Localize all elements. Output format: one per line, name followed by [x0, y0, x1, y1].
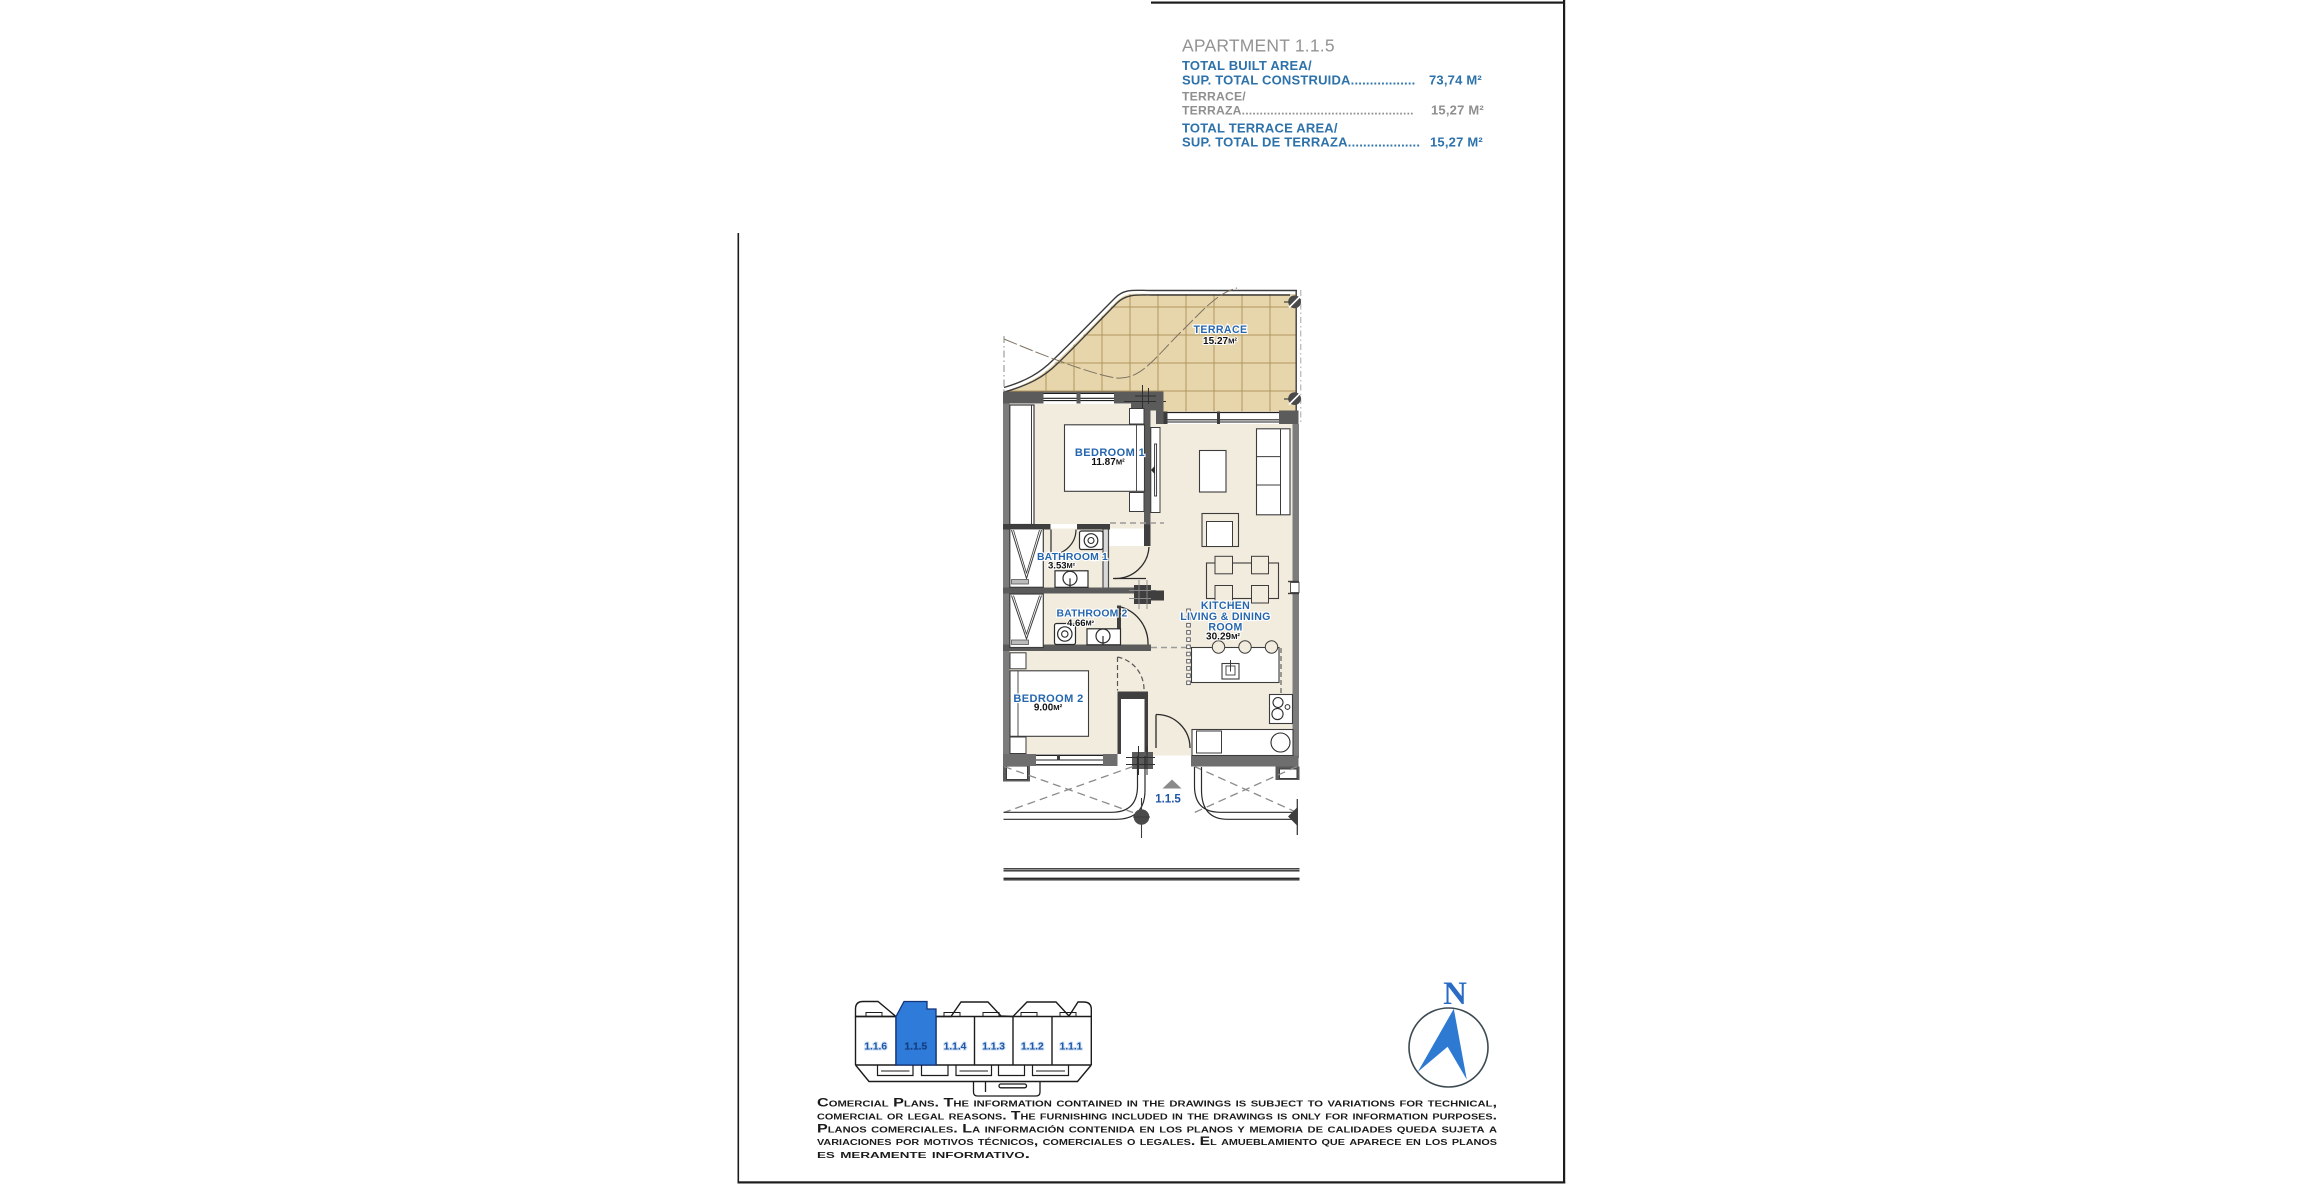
svg-text:TERRACE/: TERRACE/: [1182, 90, 1246, 104]
svg-text:1.1.5: 1.1.5: [1155, 794, 1181, 806]
svg-text:30.29M²: 30.29M²: [1206, 632, 1240, 643]
svg-text:15,27 M²: 15,27 M²: [1431, 103, 1484, 118]
svg-text:1.1.3: 1.1.3: [982, 1042, 1005, 1053]
svg-text:es meramente informativo.: es meramente informativo.: [817, 1148, 1030, 1161]
svg-text:SUP. TOTAL DE TERRAZA.........: SUP. TOTAL DE TERRAZA...................: [1182, 135, 1420, 150]
svg-text:73,74 M²: 73,74 M²: [1429, 73, 1482, 88]
svg-text:N: N: [1443, 976, 1467, 1012]
svg-text:1.1.1: 1.1.1: [1060, 1042, 1083, 1053]
svg-text:APARTMENT 1.1.5: APARTMENT 1.1.5: [1182, 36, 1335, 56]
svg-text:1.1.2: 1.1.2: [1021, 1042, 1044, 1053]
svg-text:Planos comerciales. La informa: Planos comerciales. La información conte…: [817, 1122, 1497, 1135]
svg-text:15.27M²: 15.27M²: [1203, 336, 1237, 347]
svg-text:15,27 M²: 15,27 M²: [1430, 135, 1483, 150]
svg-text:11.87M²: 11.87M²: [1091, 457, 1125, 468]
svg-text:TOTAL BUILT AREA/: TOTAL BUILT AREA/: [1182, 58, 1312, 73]
svg-text:TERRAZA.......................: TERRAZA.................................…: [1182, 104, 1414, 118]
svg-text:1.1.6: 1.1.6: [864, 1042, 887, 1053]
svg-text:variaciones por motivos técnic: variaciones por motivos técnicos, comerc…: [817, 1135, 1498, 1148]
svg-text:3.53M²: 3.53M²: [1048, 561, 1076, 572]
svg-text:comercial or legal reasons. Th: comercial or legal reasons. The furnishi…: [817, 1109, 1497, 1122]
svg-text:SUP. TOTAL CONSTRUIDA.........: SUP. TOTAL CONSTRUIDA.................: [1182, 73, 1415, 88]
svg-text:TOTAL TERRACE AREA/: TOTAL TERRACE AREA/: [1182, 121, 1338, 136]
svg-text:1.1.4: 1.1.4: [944, 1042, 967, 1053]
svg-text:9.00M²: 9.00M²: [1034, 703, 1063, 714]
svg-text:Comercial Plans. The informati: Comercial Plans. The information contain…: [817, 1097, 1497, 1110]
svg-text:TERRACE: TERRACE: [1193, 324, 1247, 336]
svg-text:1.1.5: 1.1.5: [904, 1042, 927, 1053]
svg-text:4.66M²: 4.66M²: [1067, 618, 1095, 629]
